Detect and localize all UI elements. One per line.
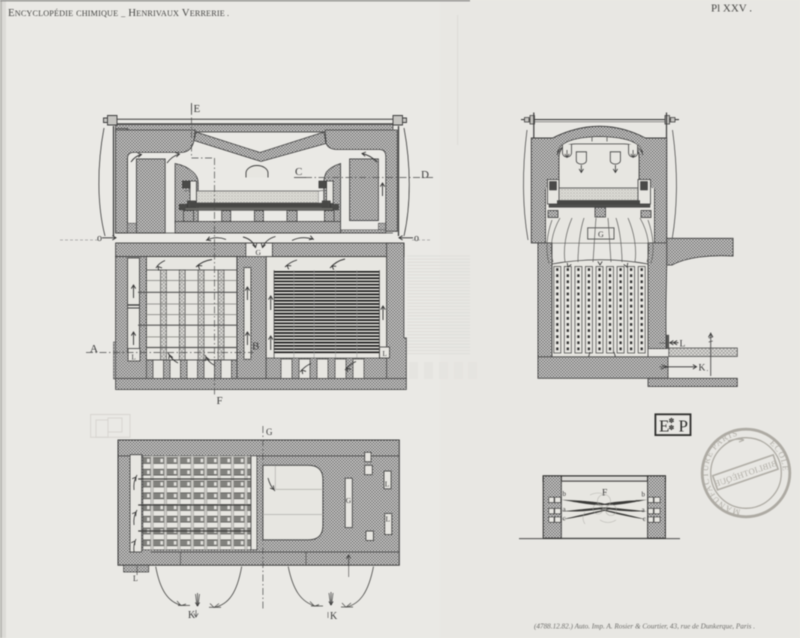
svg-text:L: L: [386, 515, 391, 524]
svg-text:G: G: [256, 248, 262, 257]
svg-text:✽: ✽: [669, 424, 675, 432]
svg-text:K: K: [699, 363, 706, 373]
svg-text:o: o: [414, 233, 419, 244]
svg-text:L: L: [133, 574, 138, 583]
svg-text:D: D: [421, 169, 429, 181]
svg-text:L: L: [680, 340, 686, 350]
svg-text:c: c: [563, 515, 566, 523]
svg-text:ENCYCLOPÉDIE CHIMIQUE _ HENRIV: ENCYCLOPÉDIE CHIMIQUE _ HENRIVAUX VERRER…: [8, 7, 229, 19]
svg-text:F: F: [217, 395, 223, 407]
svg-text:L: L: [132, 354, 136, 362]
svg-text:.: .: [707, 365, 709, 373]
svg-text:E: E: [194, 103, 201, 115]
svg-text:L: L: [385, 480, 390, 489]
svg-text:o: o: [97, 233, 102, 244]
svg-text:B: B: [252, 341, 259, 353]
svg-text:b: b: [563, 490, 567, 498]
svg-text:(4788.12.82.) Auto. Imp. A.: (4788.12.82.) Auto. Imp. A. Rosier & Cou…: [534, 623, 755, 631]
svg-text:G: G: [598, 230, 604, 239]
svg-text:Pl XXV .: Pl XXV .: [711, 3, 752, 15]
svg-text:P: P: [679, 417, 688, 436]
svg-text:L: L: [383, 350, 387, 358]
svg-text:G: G: [266, 427, 273, 437]
svg-text:C: C: [295, 166, 302, 178]
svg-text:b: b: [642, 491, 646, 499]
svg-text:K: K: [330, 611, 338, 622]
svg-text:G: G: [346, 496, 352, 505]
svg-text:A: A: [90, 343, 98, 355]
